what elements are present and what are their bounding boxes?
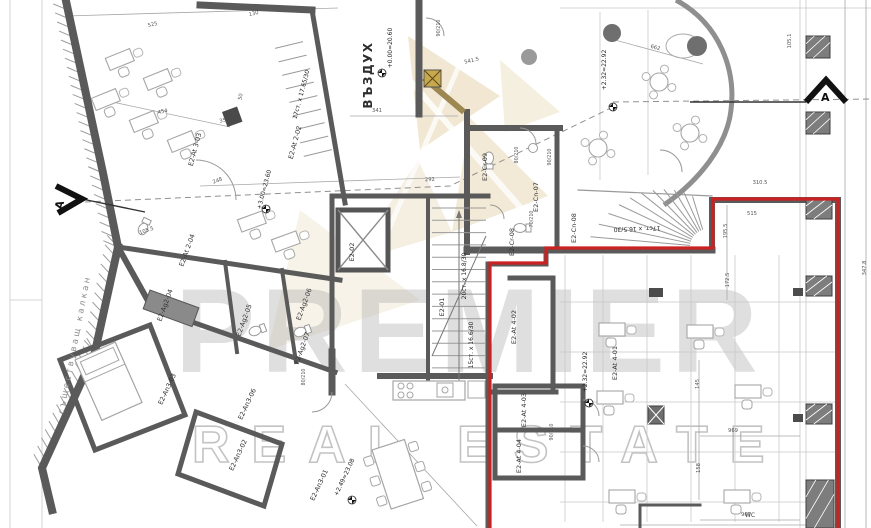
door-size-label: 80/210 bbox=[514, 147, 520, 164]
hatched-column bbox=[806, 404, 832, 424]
dimension-label: 969 bbox=[728, 428, 738, 434]
elevator-shaft bbox=[338, 210, 388, 270]
hatched-column bbox=[806, 480, 834, 528]
stair-label: 15ст. x 16.6/30 bbox=[468, 321, 475, 368]
dimension-label: 172.5 bbox=[725, 273, 731, 288]
door-size-label: 90/210 bbox=[549, 424, 555, 441]
round-column bbox=[521, 49, 537, 65]
round-column bbox=[603, 24, 621, 42]
dimension-label: 310.5 bbox=[753, 180, 768, 186]
dimension-label: 158 bbox=[696, 463, 702, 473]
elevation-mark-icon bbox=[348, 496, 356, 504]
door-size-label: 90/210 bbox=[436, 20, 442, 37]
tan-x-box bbox=[424, 70, 441, 87]
elevation-mark-icon bbox=[609, 103, 617, 111]
dimension-label: 515 bbox=[747, 211, 757, 217]
room-label: E2-Cn-07 bbox=[532, 182, 540, 212]
elevation-label: +2.32=22.92 bbox=[601, 50, 608, 91]
room-label: E2-Cr-09 bbox=[481, 153, 489, 181]
round-column bbox=[687, 36, 707, 56]
dimension-label: 145 bbox=[695, 379, 701, 389]
room-label: E2-Cr-08 bbox=[508, 228, 516, 256]
dimension-label: 341 bbox=[372, 108, 382, 114]
elevation-mark-icon bbox=[378, 69, 386, 77]
kitchen bbox=[393, 381, 485, 400]
section-letter: A bbox=[821, 91, 830, 104]
floor-plan-page: PREMIER REAL ESTATE bbox=[0, 0, 871, 528]
room-label: E2-01 bbox=[438, 298, 446, 317]
hatched-column bbox=[806, 112, 830, 134]
elevation-label: +0.00=20.60 bbox=[387, 28, 394, 69]
room-label: E2-02 bbox=[348, 243, 356, 262]
dimension-label: 347.8 bbox=[862, 261, 868, 276]
room-label: E2-At 4-03 bbox=[520, 393, 528, 427]
floor-plan-svg: PREMIER REAL ESTATE bbox=[0, 0, 871, 528]
room-label: E2-At 4-01 bbox=[611, 346, 619, 380]
x-box-column bbox=[648, 406, 664, 424]
elevation-label: +2.32=22.92 bbox=[582, 352, 589, 393]
dimension-label: 292 bbox=[425, 177, 435, 184]
stair-label: 20ст. x 16.8/30 bbox=[461, 252, 468, 299]
hatched-column bbox=[806, 276, 832, 296]
dimension-label: 105.1 bbox=[787, 34, 793, 49]
room-label: E2-Cn-08 bbox=[570, 213, 578, 243]
dimension-label: 967 bbox=[741, 512, 751, 518]
door-size-label: 70/210 bbox=[529, 211, 535, 228]
room-label: E2-At 4-02 bbox=[510, 310, 518, 344]
door-size-label: 80/210 bbox=[301, 369, 307, 386]
elevation-mark-icon bbox=[262, 205, 270, 213]
door-size-label: 90/210 bbox=[547, 149, 553, 166]
hatched-column bbox=[806, 36, 830, 58]
dimension-label: 195.5 bbox=[723, 224, 729, 239]
room-label: E2-At 4-04 bbox=[515, 439, 523, 473]
elevation-mark-icon bbox=[585, 399, 593, 407]
hatched-column bbox=[806, 199, 832, 219]
air-shaft-label: ВЪЗДУХ bbox=[361, 41, 375, 108]
